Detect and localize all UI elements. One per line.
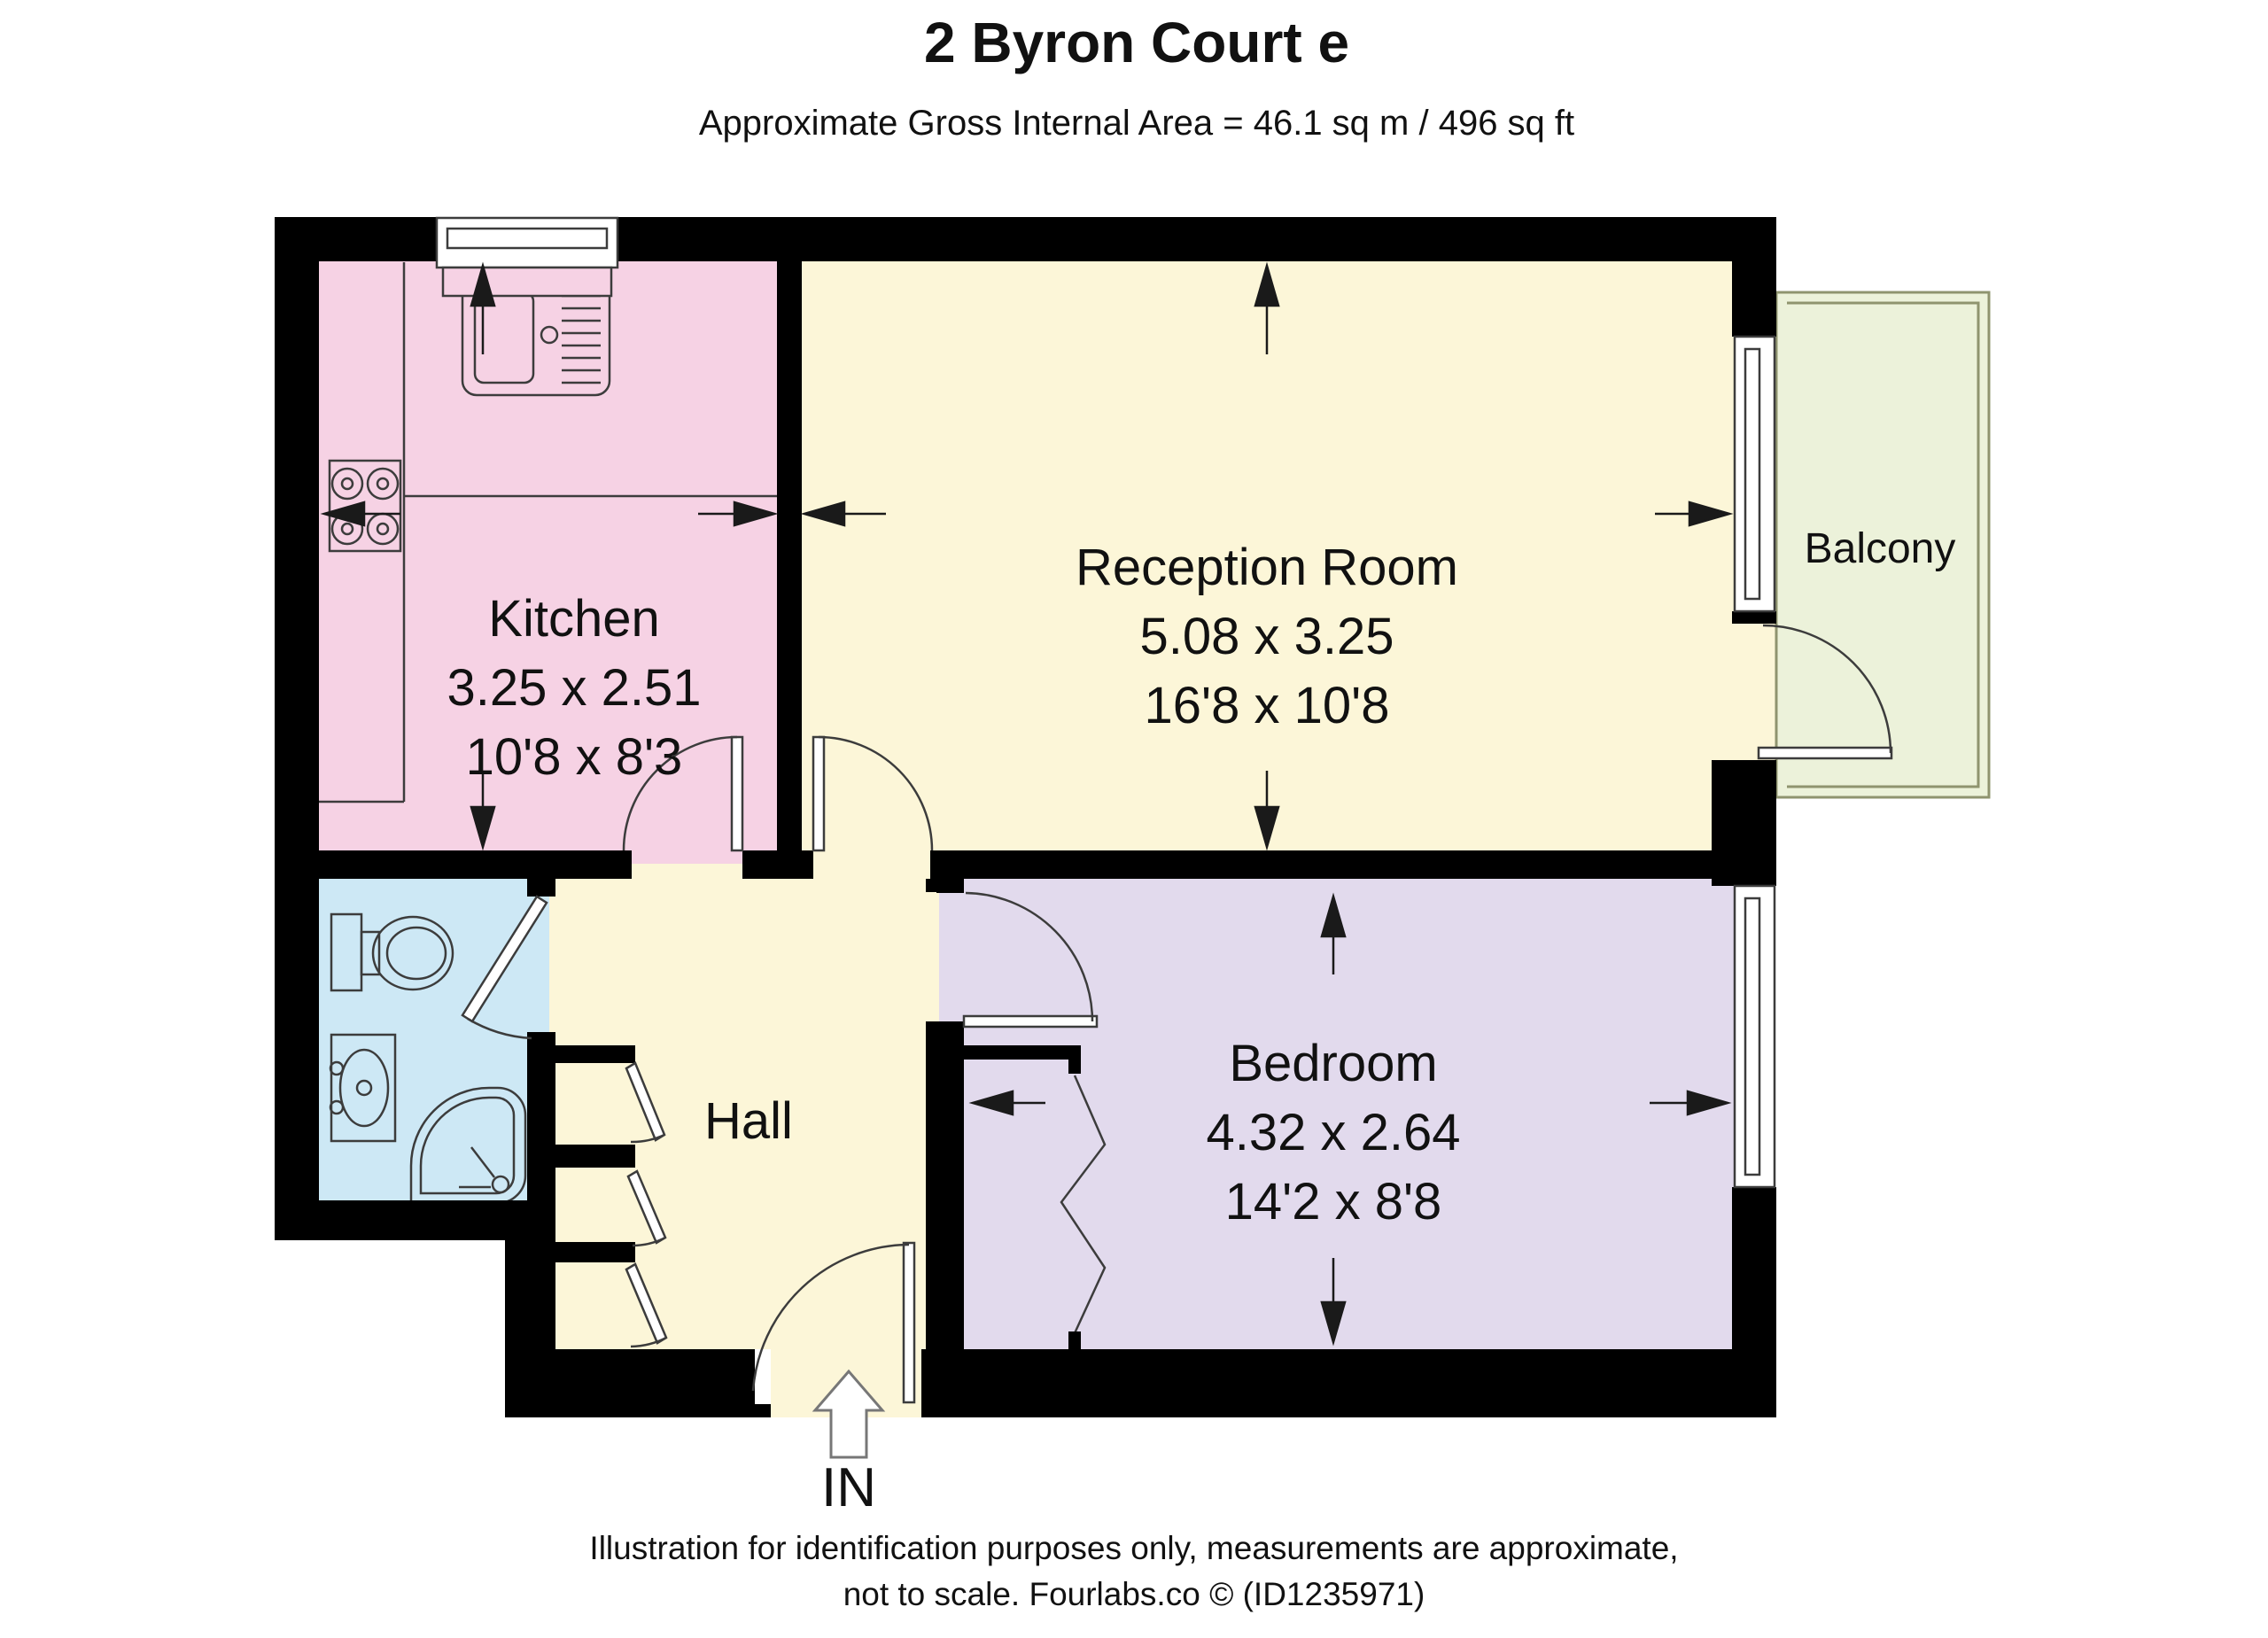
wardrobe-wall-corner [1068,1060,1081,1074]
wall-right-sliver [1732,611,1776,624]
page-subtitle: Approximate Gross Internal Area = 46.1 s… [699,104,1574,143]
bedroom-dim-imperial: 14'2 x 8'8 [1225,1173,1442,1230]
reception-dim-imperial: 16'8 x 10'8 [1145,677,1390,734]
wall-bathroom-bottom [275,1200,555,1240]
kitchen-dim-metric: 3.25 x 2.51 [447,659,702,717]
balcony-doorway-floor [1732,624,1778,760]
wall-kitchen-reception [777,261,802,850]
footer-line1: Illustration for identification purposes… [589,1530,1678,1566]
cupboard-stub-3 [555,1242,635,1262]
wardrobe-wall-top [964,1045,1081,1060]
wall-right-mid [1712,760,1776,886]
bedroom-label-group: Bedroom 4.32 x 2.64 14'2 x 8'8 [1207,1035,1461,1230]
page-title: 2 Byron Court e [924,11,1349,74]
cupboard-stub-2 [555,1145,635,1168]
reception-name: Reception Room [1076,539,1458,596]
balcony-name: Balcony [1805,525,1956,572]
bedroom-window [1735,886,1775,1187]
cupboard-stub-1 [555,1045,635,1063]
wall-right-top [1732,261,1776,337]
hall-name: Hall [704,1092,793,1150]
kitchen-name: Kitchen [488,590,659,648]
wall-left [275,217,319,1240]
floorplan-canvas: 2 Byron Court e Approximate Gross Intern… [0,0,2268,1638]
reception-dim-metric: 5.08 x 3.25 [1140,608,1394,665]
kitchen-window [437,218,617,296]
reception-window [1735,337,1775,611]
kitchen-dim-imperial: 10'8 x 8'3 [466,728,683,786]
wall-bottom-left [505,1349,771,1417]
entrance-label: IN [821,1457,876,1518]
bedroom-name: Bedroom [1229,1035,1437,1092]
wall-bottom-right [921,1349,1776,1417]
wall-bath-top [527,879,555,897]
wall-mid-left [275,850,632,879]
wall-right-bottom [1732,1187,1776,1417]
bedroom-dim-metric: 4.32 x 2.64 [1207,1104,1461,1161]
wall-reception-bedroom [930,850,1776,879]
wall-mid-center [742,850,813,879]
wall-hall-bedroom-top [926,879,964,892]
floorplan-page: 2 Byron Court e Approximate Gross Intern… [0,0,2268,1638]
footer-line2: not to scale. Fourlabs.co © (ID1235971) [843,1576,1425,1612]
wardrobe-wall-stub [1068,1331,1081,1349]
